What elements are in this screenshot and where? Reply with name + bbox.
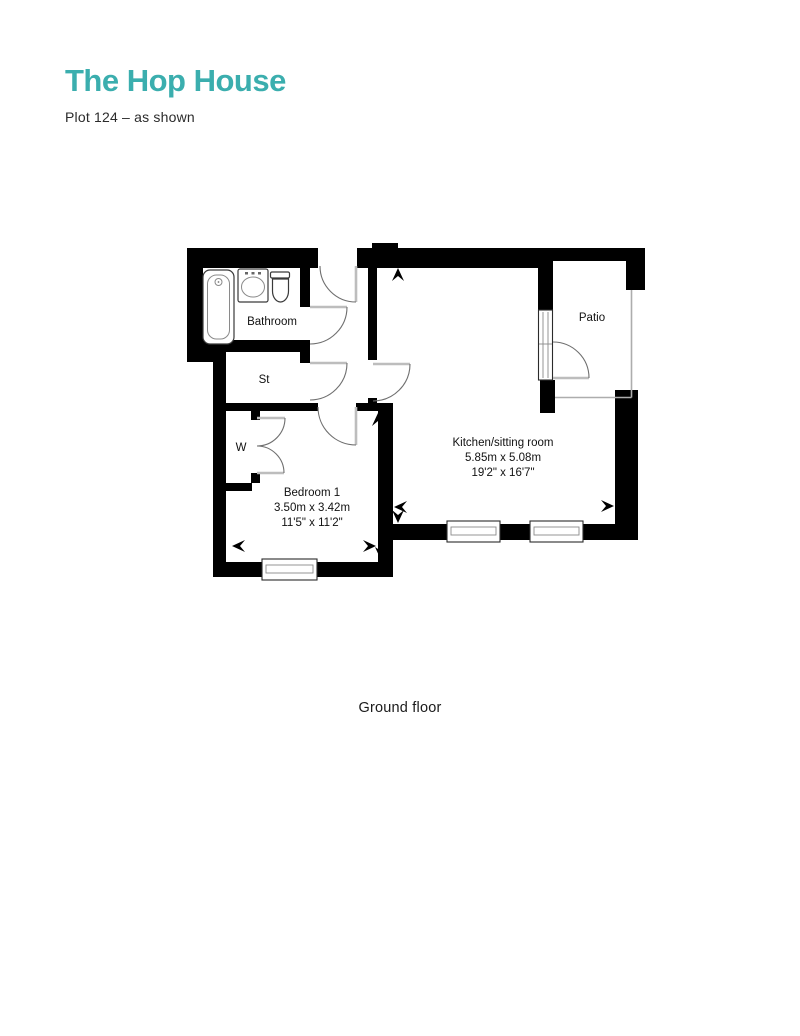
bathroom-fixtures [203,269,290,344]
wardrobe-jamb [251,473,260,483]
bedroom-dims-metric: 3.50m x 3.42m [274,502,350,514]
bedroom-window [262,559,317,580]
wall-segment [187,248,318,268]
patio-label: Patio [579,312,605,324]
arrow-right-kitchen [601,500,614,512]
wall-segment [213,352,226,577]
arrow-up-kitchen [392,268,404,281]
arrow-down-kitchen [392,510,404,523]
wardrobe-bottom-wall [226,483,252,491]
toilet [271,272,290,302]
patio-glazed-door-panel [539,310,553,380]
floor-label: Ground floor [0,700,800,716]
bathtub [203,270,234,344]
arrow-left-kitchen [394,501,407,513]
kitchen-door [373,364,410,401]
wall-segment [538,261,553,310]
floor-plan: Bathroom St W Bedroom 1 3.50m x 3.42m 11… [0,0,800,1036]
storage-door [310,363,347,400]
bathroom-door [310,307,347,344]
kitchen-dims-metric: 5.85m x 5.08m [465,452,541,464]
wall-segment [357,248,538,268]
wall-segment [300,343,310,363]
wall-segment [540,380,555,413]
wall-segment [300,264,310,307]
wall-segment [538,248,645,261]
sink [238,269,268,302]
bathroom-label: Bathroom [247,316,297,328]
entrance-door [320,266,356,302]
kitchen-dims-imperial: 19'2" x 16'7" [471,467,534,479]
wall-segment [393,524,638,540]
wardrobe-doors [257,418,285,473]
wall-segment [615,390,638,540]
wall-segment [368,264,377,360]
kitchen-window-1 [447,521,500,542]
bedroom-dims-imperial: 11'5" x 11'2" [281,517,342,529]
kitchen-window-2 [530,521,583,542]
patio-open-edges [555,290,632,398]
kitchen-label: Kitchen/sitting room [453,437,554,449]
wall-segment [187,248,203,362]
wall-segment [213,403,318,411]
arrow-right-bedroom [363,540,376,552]
arrow-left-bedroom [232,540,245,552]
wall-segment [626,261,645,290]
bedroom-label: Bedroom 1 [284,487,340,499]
bedroom-door [318,407,356,445]
wall-segment [372,243,398,249]
wardrobe-label: W [236,442,247,454]
floorplan-page: The Hop House Plot 124 – as shown [0,0,800,1036]
patio-door [553,342,589,378]
storage-label: St [259,374,271,386]
